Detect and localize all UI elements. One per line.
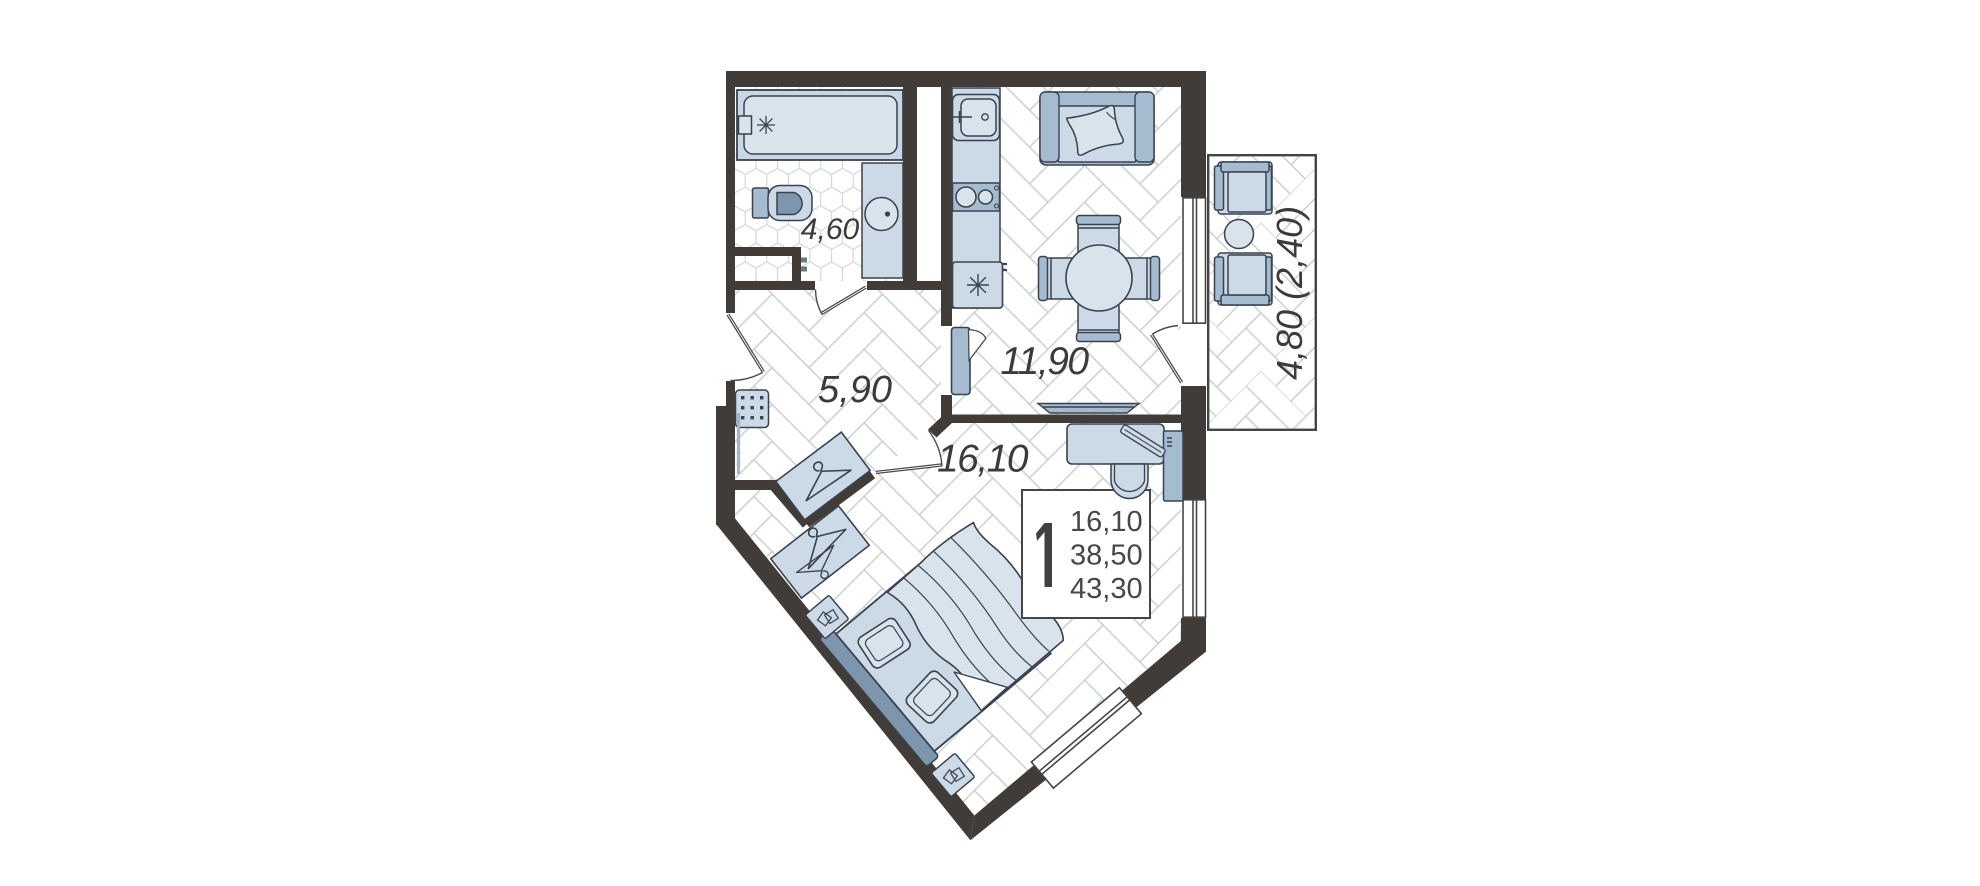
svg-text:16,10: 16,10 xyxy=(937,438,1029,481)
svg-text:5,90: 5,90 xyxy=(818,369,892,411)
svg-text:16,10: 16,10 xyxy=(1070,506,1143,538)
svg-text:43,30: 43,30 xyxy=(1070,573,1143,605)
svg-text:4,80 (2,40): 4,80 (2,40) xyxy=(1269,206,1310,380)
svg-text:38,50: 38,50 xyxy=(1070,540,1143,572)
svg-text:4,60: 4,60 xyxy=(801,213,860,246)
svg-text:11,90: 11,90 xyxy=(1000,340,1089,383)
